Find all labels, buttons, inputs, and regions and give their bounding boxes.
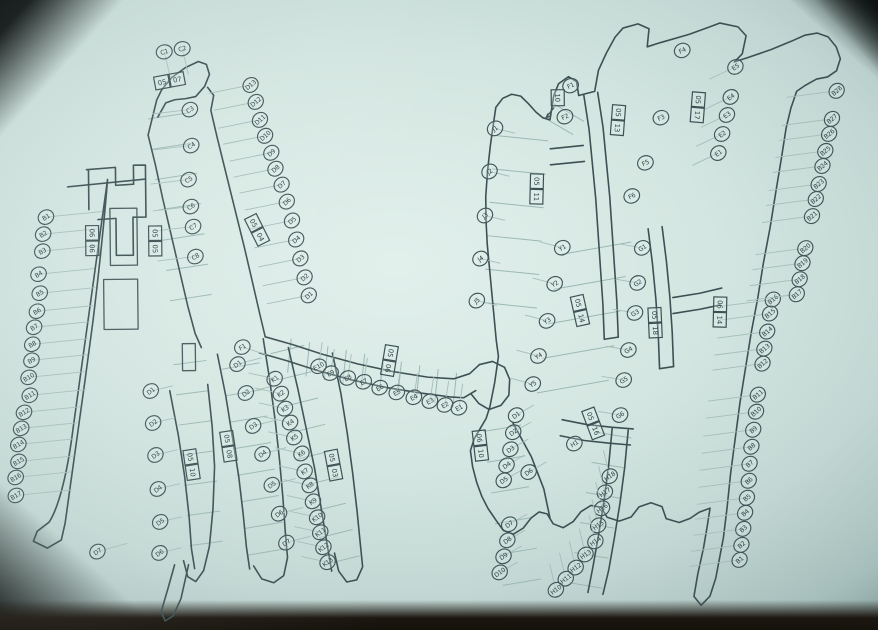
label-leader-line [16, 472, 72, 478]
plot-label-circle: H16 [591, 498, 612, 519]
plot-label-circle: B14 [757, 321, 778, 342]
parcel-division-line [487, 235, 541, 242]
plot-label-circle: D1 [505, 405, 526, 426]
parcel-division-line [248, 549, 286, 555]
parcel-division-line [176, 391, 209, 395]
parcel-division-line [483, 302, 537, 309]
plot-label-circle: D1 [298, 285, 319, 306]
label-leader-line [21, 423, 77, 429]
plot-label-circle: B9 [743, 419, 764, 440]
plot-label-circle: Y4 [528, 346, 549, 366]
plot-label-circle: B15 [8, 451, 29, 471]
parcel-division-line [542, 346, 614, 359]
plot-label-circle: C2 [173, 40, 192, 58]
plot-label-circle: J3 [474, 205, 495, 226]
plot-label-circle: Y1 [552, 238, 573, 258]
plot-label-circle: B6 [738, 470, 759, 491]
plot-label-circle: B5 [29, 283, 50, 303]
parcel-division-line [162, 234, 204, 240]
plot-label-circle: D4 [147, 479, 168, 500]
label-leader-line [29, 372, 85, 378]
svg-text:13: 13 [613, 123, 622, 132]
svg-text:03: 03 [330, 468, 339, 478]
block-outline [604, 337, 618, 339]
plot-label-circle: D2 [294, 267, 315, 288]
svg-text:07: 07 [172, 75, 182, 84]
plot-label-circle: F6 [622, 186, 642, 206]
street-number-plate: 0518 [648, 307, 662, 338]
plot-label-circle: D3 [145, 445, 166, 466]
street-number-plate: 0511 [530, 174, 544, 204]
plot-label-circle: C1 [155, 43, 174, 61]
block-outline [550, 145, 584, 164]
parcel-division-line [245, 522, 283, 528]
plot-label-circle: G2 [627, 273, 648, 293]
plot-label-circle: D9 [493, 546, 514, 567]
svg-text:06: 06 [88, 229, 96, 238]
label-leader-line [32, 339, 88, 345]
svg-text:06: 06 [716, 300, 724, 309]
svg-text:08: 08 [224, 449, 233, 459]
svg-text:05: 05 [650, 311, 658, 320]
plot-label-circle: D7 [87, 541, 108, 562]
plot-label-circle: B8 [741, 436, 762, 457]
street-number-plate: 0507 [154, 72, 186, 90]
parcel-division-line [569, 582, 603, 588]
plot-label-circle: D13 [240, 74, 261, 95]
block-outline [660, 367, 674, 369]
plot-label-circle: K11 [310, 522, 331, 543]
street-number-plate: 0503 [324, 449, 342, 481]
plate-arrow [546, 108, 554, 118]
plot-label-circle: J1 [484, 118, 505, 139]
plot-label-circle: D5 [150, 512, 171, 533]
parcel-division-line [170, 294, 212, 300]
street-number-plate: 0610 [472, 430, 488, 461]
plot-label-circle: E2 [712, 124, 733, 145]
label-leader-line [24, 407, 80, 413]
svg-text:05: 05 [151, 245, 159, 254]
plot-label-circle: D6 [276, 191, 297, 212]
plot-label-circle: B1 [36, 207, 57, 227]
plot-label-circle: C5 [178, 170, 199, 190]
plot-label-circle: C4 [181, 135, 202, 155]
plot-label-circle: E3 [716, 105, 737, 126]
street-number-plate: 0514 [570, 294, 589, 326]
street-number-plate: 0508 [220, 430, 237, 462]
plot-label-circle: D6 [149, 543, 170, 564]
plot-label-circle: E1 [708, 143, 729, 164]
plot-label-circle: K6 [291, 443, 312, 464]
block-outline [265, 335, 479, 381]
plot-label-circle: D10 [254, 125, 275, 146]
plot-label-circle: F2 [555, 107, 575, 127]
plot-label-circle: B8 [22, 334, 43, 354]
plot-label-circle: B27 [821, 108, 842, 129]
plot-label-circle: D4 [286, 229, 307, 250]
plot-label-circle: F4 [672, 41, 692, 61]
plot-label-circle: D5 [281, 210, 302, 231]
svg-text:06: 06 [383, 363, 392, 373]
plot-label-circle: J2 [479, 161, 500, 182]
plot-label-circle: H15 [588, 515, 609, 536]
svg-text:06: 06 [475, 433, 484, 443]
plot-label-circle: B5 [736, 487, 757, 508]
photographed-survey-map: B1B2B3B4B5B6B7B8B9B10B11B12B13B14B15B16B… [0, 0, 878, 630]
plot-label-circle: B25 [815, 140, 836, 161]
plot-label-circle: B12 [14, 402, 35, 422]
parcel-division-line [537, 380, 609, 393]
plot-label-circle: C6 [180, 196, 201, 216]
svg-text:05: 05 [157, 78, 167, 87]
svg-text:14: 14 [715, 316, 723, 325]
parcel-division-line [237, 469, 275, 475]
plot-label-circle: B11 [19, 385, 40, 405]
block-outline [161, 565, 190, 621]
plot-label-circle: B17 [5, 485, 26, 505]
parcel-division-line [189, 541, 222, 545]
plot-label-circle: Y2 [544, 274, 565, 294]
plot-label-circle: G6 [610, 405, 631, 425]
svg-text:18: 18 [651, 326, 659, 335]
plot-label-circle: B11 [747, 384, 768, 405]
label-leader-line [18, 456, 74, 462]
parcel-division-line [187, 511, 220, 515]
label-leader-line [31, 355, 87, 361]
survey-map-drawing: B1B2B3B4B5B6B7B8B9B10B11B12B13B14B15B16B… [0, 0, 878, 630]
plot-label-circle: B16 [762, 289, 783, 310]
parcel-division-line [485, 269, 539, 276]
plot-label-circle: B7 [24, 317, 45, 337]
plot-label-circle: D2 [143, 413, 164, 434]
plot-label-circle: D6 [518, 462, 539, 483]
parcel-division-line [494, 135, 548, 142]
plot-label-circle: D5 [493, 470, 514, 491]
plot-label-circle: D6 [268, 503, 289, 524]
label-leader-line [38, 269, 94, 275]
plot-label-circle: B9 [21, 350, 42, 370]
plot-label-circle: Y3 [537, 311, 558, 331]
parcel-division-line [173, 360, 206, 364]
plot-label-circle: D12 [245, 91, 266, 112]
plot-label-circle: C8 [185, 246, 206, 266]
street-number-plate: 0517 [690, 92, 705, 123]
svg-text:05: 05 [185, 452, 194, 462]
plot-label-circle: D5 [261, 474, 282, 495]
svg-text:10: 10 [553, 93, 561, 102]
plot-label-circle: B28 [826, 80, 847, 101]
plot-label-circle: B7 [739, 453, 760, 474]
plot-label-circle: D1 [140, 381, 161, 402]
street-number-plate: 0504 [245, 214, 270, 247]
plot-label-circle: J5 [466, 290, 487, 311]
street-number-plate: 0513 [610, 105, 625, 136]
plot-label-circle: B2 [33, 224, 54, 244]
label-leader-line [37, 306, 93, 312]
plot-label-circle: B2 [731, 534, 752, 555]
plot-label-circle: B4 [28, 264, 49, 284]
plot-label-circle: G5 [613, 370, 634, 390]
street-number-plate: 0614 [713, 297, 727, 327]
parcel-division-line [241, 496, 279, 502]
svg-text:05: 05 [614, 108, 623, 117]
plot-label-circle: D10 [489, 562, 510, 583]
plot-label-circle: B6 [26, 301, 47, 321]
svg-text:06: 06 [88, 244, 96, 253]
plot-label-circle: B21 [801, 206, 822, 227]
svg-text:10: 10 [188, 468, 197, 478]
block-outline [584, 94, 605, 339]
plot-label-circle: D1 [227, 354, 248, 375]
plot-label-circle: G3 [625, 303, 646, 323]
label-leader-line [34, 322, 90, 328]
plot-label-circle: D7 [271, 174, 292, 195]
svg-text:05: 05 [694, 95, 703, 104]
plot-label-circle: B13 [11, 418, 32, 438]
parcel-division-line [491, 487, 529, 493]
plot-label-circle: H17 [594, 482, 615, 503]
plot-label-circle: B3 [32, 241, 53, 261]
plot-label-circle: E4 [720, 87, 741, 108]
svg-text:05: 05 [222, 434, 231, 444]
svg-text:05: 05 [151, 229, 159, 238]
plot-label-circle: D2 [235, 383, 256, 404]
svg-text:05: 05 [386, 348, 395, 358]
plot-label-circle: F3 [651, 108, 671, 128]
parcel-division-line [503, 579, 541, 585]
label-leader-line [18, 439, 74, 445]
svg-text:05: 05 [327, 453, 336, 463]
street-number-plate: 0606 [86, 226, 99, 256]
block-outline [662, 227, 673, 367]
parcel-division-line [306, 342, 310, 376]
inner-parcel-outline [182, 344, 195, 371]
street-number-plate: 0505 [149, 226, 162, 256]
plot-label-circle: E6 [369, 378, 390, 398]
plot-label-circle: D3 [500, 439, 521, 460]
plot-label-circle: D3 [243, 416, 264, 437]
plot-label-circle: F5 [635, 153, 655, 173]
plot-label-circle: B23 [808, 173, 829, 194]
svg-text:10: 10 [476, 449, 485, 459]
plot-label-circle: C7 [183, 216, 204, 236]
inner-parcel-outline [104, 279, 139, 329]
plot-label-circle: Y5 [522, 374, 543, 394]
label-leader-line [46, 212, 102, 218]
parcel-division-line [179, 421, 212, 425]
plot-label-circle: G4 [618, 340, 639, 360]
plot-label-circle: B16 [5, 467, 26, 487]
plot-label-circle: B18 [789, 269, 810, 290]
plot-label-circle: K12 [313, 537, 334, 558]
block-outline [673, 288, 722, 298]
plot-label-circle: F1 [232, 337, 253, 357]
plot-label-circle: B13 [754, 338, 775, 359]
plot-label-circle: D3 [290, 248, 311, 269]
plot-label-circle: C3 [179, 100, 200, 120]
svg-text:17: 17 [692, 110, 701, 119]
plot-label-circle: D4 [252, 444, 273, 465]
svg-text:05: 05 [532, 177, 540, 186]
parcel-division-line [184, 481, 217, 485]
parcel-division-line [166, 264, 208, 270]
plot-label-circle: E7 [353, 372, 374, 392]
plot-label-circle: B20 [795, 238, 816, 259]
plot-label-circle: B14 [8, 434, 29, 454]
plot-label-circle: B3 [733, 518, 754, 539]
label-leader-line [40, 288, 96, 294]
label-leader-line [16, 490, 72, 496]
plot-label-circle: B10 [18, 367, 39, 387]
plot-label-circle: D9 [261, 142, 282, 163]
plot-label-circle: B10 [745, 401, 766, 422]
plot-label-circle: E5 [386, 382, 407, 402]
svg-text:11: 11 [532, 192, 540, 201]
plot-label-circle: D11 [249, 109, 270, 130]
plot-label-circle: D8 [265, 158, 286, 179]
plot-label-circle: E8 [337, 368, 358, 388]
plot-label-circle: K9 [302, 491, 323, 512]
